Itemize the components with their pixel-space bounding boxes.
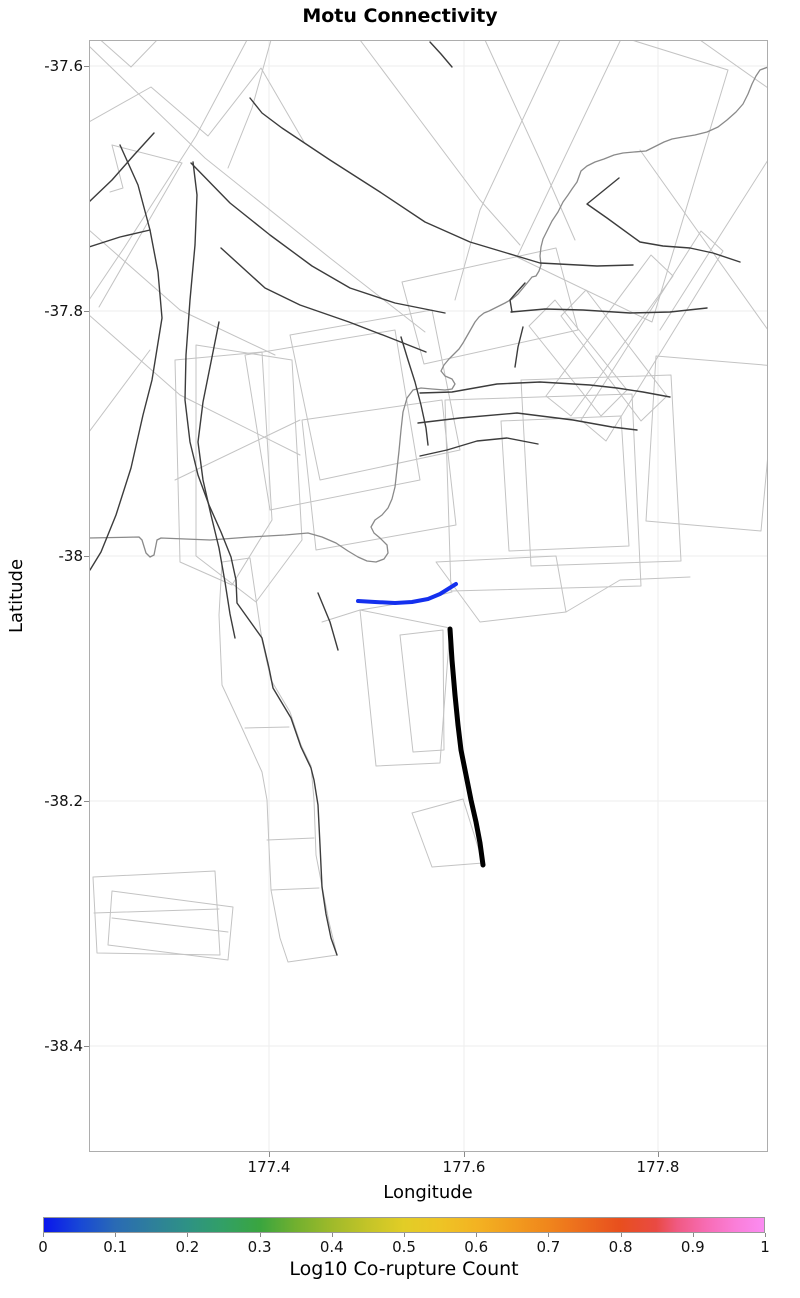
figure: Motu Connectivity Latitude Longitude Log… bbox=[0, 0, 800, 1298]
y-tick-label: -37.8 bbox=[44, 302, 83, 320]
colorbar-tick-mark bbox=[693, 1233, 694, 1237]
colorbar-tick-mark bbox=[548, 1233, 549, 1237]
x-tick-mark bbox=[658, 1152, 659, 1157]
colorbar-tick-label: 0 bbox=[38, 1238, 48, 1256]
x-tick-label: 177.4 bbox=[248, 1158, 291, 1176]
x-axis-label: Longitude bbox=[383, 1182, 473, 1203]
x-tick-mark bbox=[464, 1152, 465, 1157]
colorbar-tick-mark bbox=[404, 1233, 405, 1237]
colorbar-tick-label: 0.2 bbox=[175, 1238, 199, 1256]
colorbar-tick-mark bbox=[187, 1233, 188, 1237]
colorbar-tick-mark bbox=[260, 1233, 261, 1237]
colorbar-tick-mark bbox=[332, 1233, 333, 1237]
y-tick-label: -38 bbox=[59, 547, 84, 565]
colorbar-label: Log10 Co-rupture Count bbox=[289, 1258, 518, 1280]
colorbar-tick-mark bbox=[115, 1233, 116, 1237]
colorbar-tick-label: 1 bbox=[760, 1238, 770, 1256]
colorbar-tick-mark bbox=[765, 1233, 766, 1237]
y-tick-mark bbox=[84, 801, 89, 802]
plot-title: Motu Connectivity bbox=[302, 5, 497, 27]
y-tick-mark bbox=[84, 1046, 89, 1047]
plot-frame bbox=[89, 40, 768, 1152]
x-tick-label: 177.8 bbox=[637, 1158, 680, 1176]
colorbar-tick-mark bbox=[476, 1233, 477, 1237]
colorbar bbox=[43, 1217, 765, 1233]
colorbar-tick-label: 0.3 bbox=[248, 1238, 272, 1256]
colorbar-tick-mark bbox=[43, 1233, 44, 1237]
colorbar-tick-mark bbox=[621, 1233, 622, 1237]
colorbar-tick-label: 0.1 bbox=[103, 1238, 127, 1256]
y-tick-mark bbox=[84, 66, 89, 67]
colorbar-tick-label: 0.4 bbox=[320, 1238, 344, 1256]
colorbar-tick-label: 0.6 bbox=[464, 1238, 488, 1256]
x-tick-label: 177.6 bbox=[443, 1158, 486, 1176]
y-tick-mark bbox=[84, 311, 89, 312]
y-tick-mark bbox=[84, 556, 89, 557]
y-tick-label: -38.4 bbox=[44, 1037, 83, 1055]
colorbar-tick-label: 0.9 bbox=[681, 1238, 705, 1256]
y-tick-label: -38.2 bbox=[44, 792, 83, 810]
y-tick-label: -37.6 bbox=[44, 57, 83, 75]
y-axis-label: Latitude bbox=[6, 559, 27, 633]
x-tick-mark bbox=[269, 1152, 270, 1157]
colorbar-tick-label: 0.7 bbox=[536, 1238, 560, 1256]
colorbar-tick-label: 0.5 bbox=[392, 1238, 416, 1256]
colorbar-tick-label: 0.8 bbox=[609, 1238, 633, 1256]
